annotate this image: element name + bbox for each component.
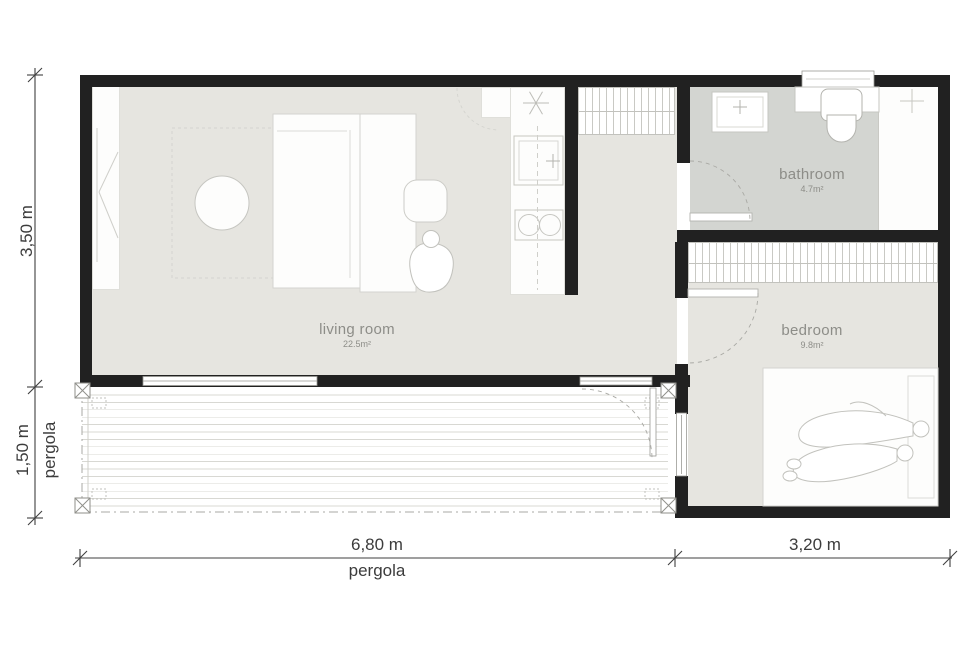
dimension-pergola-depth: 1,50 m xyxy=(13,410,33,490)
dimension-main-width: 6,80 m xyxy=(297,535,457,555)
pergola-side-label: pergola xyxy=(40,410,60,490)
dimension-bedroom-width: 3,20 m xyxy=(735,535,895,555)
dimension-tick xyxy=(27,380,43,394)
wall-top xyxy=(80,75,950,87)
living-room-label: living room xyxy=(277,321,437,338)
entry-closet xyxy=(578,87,675,135)
floor-plan: living room 22.5m² bathroom 4.7m² bedroo… xyxy=(0,0,960,660)
wall-bathroom-bedroom xyxy=(677,230,950,242)
wall-bottom-bedroom xyxy=(675,506,950,518)
dimension-tick xyxy=(668,549,682,567)
pergola-bottom-label: pergola xyxy=(297,561,457,581)
shower-area xyxy=(878,87,938,230)
dimension-tick xyxy=(73,549,87,567)
wall-kitchen-hall xyxy=(565,87,578,295)
wall-bedroom-left-c xyxy=(675,476,688,518)
closet-rail xyxy=(579,111,674,112)
dimension-building-height: 3,50 m xyxy=(17,191,37,271)
bathroom-label: bathroom xyxy=(732,166,892,183)
bedroom-label: bedroom xyxy=(732,322,892,339)
wall-right xyxy=(938,75,950,518)
pergola-deck xyxy=(82,388,668,512)
bathroom-floor xyxy=(690,87,878,230)
closet-rail xyxy=(689,263,937,264)
wardrobe xyxy=(92,82,120,290)
bedroom-glass-door xyxy=(677,413,687,476)
dimension-tick xyxy=(943,549,957,567)
wall-left xyxy=(80,75,92,387)
bedroom-area: 9.8m² xyxy=(732,340,892,350)
wall-bottom-living xyxy=(80,375,690,387)
wall-bathroom-left xyxy=(677,87,690,163)
dimension-tick xyxy=(27,68,43,82)
bathroom-area: 4.7m² xyxy=(732,184,892,194)
bedroom-closet xyxy=(688,242,938,283)
kitchen-counter xyxy=(510,87,565,295)
dimension-tick xyxy=(27,511,43,525)
wall-bedroom-left-b xyxy=(675,364,688,414)
living-room-area: 22.5m² xyxy=(277,339,437,349)
wall-bedroom-left-a xyxy=(675,242,688,298)
